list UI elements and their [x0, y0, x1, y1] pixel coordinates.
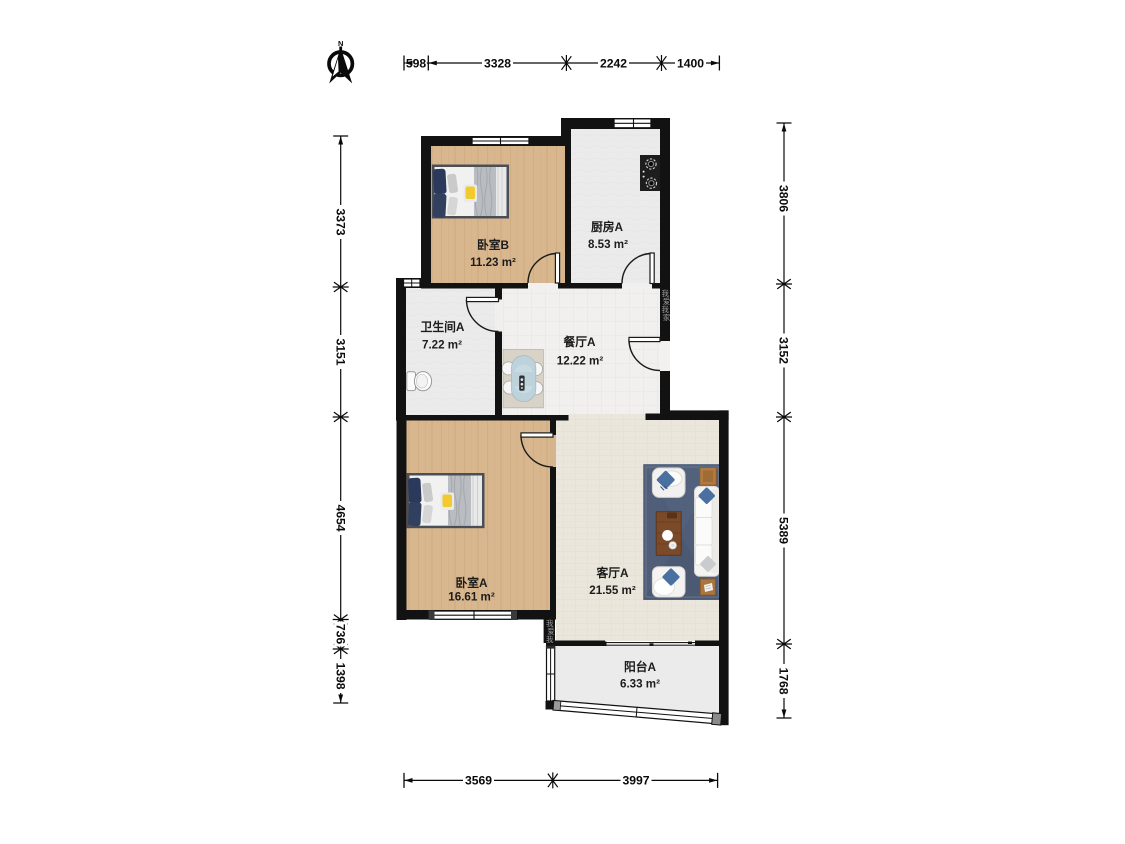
- svg-text:3151: 3151: [333, 338, 347, 365]
- svg-text:11.23 m²: 11.23 m²: [470, 256, 516, 269]
- svg-text:3569: 3569: [465, 774, 492, 788]
- svg-text:3373: 3373: [333, 208, 347, 235]
- svg-text:736: 736: [333, 624, 347, 645]
- svg-text:1768: 1768: [777, 667, 791, 694]
- svg-text:3152: 3152: [777, 337, 791, 364]
- svg-text:阳台A: 阳台A: [624, 660, 657, 674]
- svg-text:6.33 m²: 6.33 m²: [620, 678, 660, 691]
- svg-text:21.55 m²: 21.55 m²: [589, 584, 636, 597]
- svg-text:餐厅A: 餐厅A: [562, 335, 596, 349]
- svg-text:4654: 4654: [333, 504, 347, 531]
- svg-text:卧室B: 卧室B: [477, 238, 509, 252]
- svg-text:3997: 3997: [622, 774, 649, 788]
- svg-text:卫生间A: 卫生间A: [421, 320, 465, 334]
- svg-text:7.22 m²: 7.22 m²: [422, 339, 462, 352]
- svg-text:3328: 3328: [484, 56, 511, 70]
- svg-text:5389: 5389: [777, 517, 791, 544]
- svg-text:16.61 m²: 16.61 m²: [448, 591, 495, 604]
- svg-text:N: N: [338, 39, 343, 48]
- svg-text:我: 我: [546, 634, 554, 644]
- svg-text:厨房A: 厨房A: [591, 220, 624, 234]
- svg-text:家: 家: [663, 312, 671, 322]
- svg-text:1400: 1400: [677, 56, 704, 70]
- svg-text:1398: 1398: [333, 662, 347, 689]
- svg-text:3806: 3806: [777, 185, 791, 212]
- svg-text:12.22 m²: 12.22 m²: [557, 355, 604, 368]
- svg-text:8.53 m²: 8.53 m²: [588, 238, 628, 251]
- svg-text:卧室A: 卧室A: [455, 576, 488, 590]
- svg-text:2242: 2242: [600, 56, 627, 70]
- svg-text:客厅A: 客厅A: [595, 566, 629, 580]
